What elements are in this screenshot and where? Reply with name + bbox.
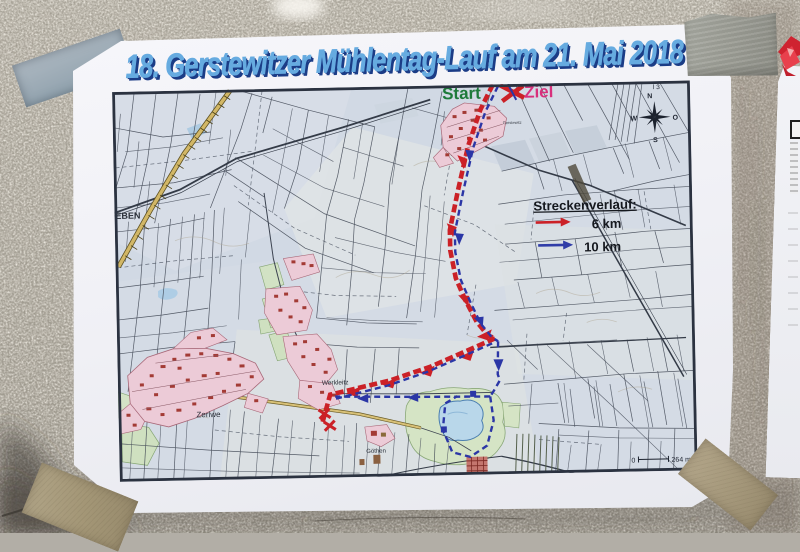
svg-text:W: W <box>631 115 638 122</box>
svg-text:EBEN: EBEN <box>115 210 140 221</box>
svg-text:0: 0 <box>631 458 635 465</box>
svg-text:Göthen: Göthen <box>366 449 386 455</box>
svg-text:Werkleitz: Werkleitz <box>322 379 349 387</box>
svg-text:N: N <box>647 93 652 100</box>
svg-text:10 km: 10 km <box>584 239 621 255</box>
svg-text:l 3: l 3 <box>653 84 660 91</box>
svg-text:6 km: 6 km <box>592 216 622 232</box>
svg-text:Zerlwe: Zerlwe <box>196 410 221 419</box>
svg-text:O: O <box>673 115 679 122</box>
svg-text:Streckenverlauf:: Streckenverlauf: <box>533 196 637 213</box>
svg-text:S: S <box>653 137 658 144</box>
svg-text:Gerstewitz: Gerstewitz <box>503 120 522 125</box>
